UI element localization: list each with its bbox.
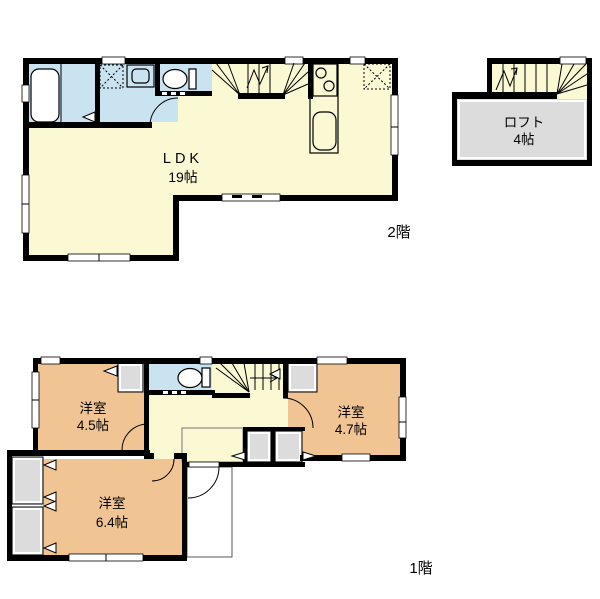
closet-room45: [118, 363, 143, 392]
loft-size-label: 4帖: [513, 132, 534, 147]
entrance-porch: [187, 467, 232, 557]
room45-size-label: 4.5帖: [77, 418, 109, 433]
loft-plan: ロフト 4帖: [452, 57, 592, 166]
room45-label: 洋室: [80, 400, 107, 416]
bathtub-icon: [31, 69, 59, 122]
floor2-label: 2階: [387, 224, 410, 241]
ldk-size-label: 19帖: [168, 169, 198, 185]
floor2-plan: LDK 19帖 2階: [22, 57, 411, 261]
room64-size-label: 6.4帖: [96, 515, 128, 530]
closet-room47-top: [288, 363, 317, 392]
room47-label: 洋室: [338, 404, 365, 420]
closet-hall: [247, 431, 271, 462]
toilet1f-icon: [178, 368, 210, 388]
room64-label: 洋室: [99, 495, 126, 511]
floor-plan-drawing: LDK 19帖 2階 ロ: [0, 0, 600, 599]
loft-label: ロフト: [504, 115, 545, 130]
floor-plan-page: LDK 19帖 2階 ロ: [0, 0, 600, 599]
floor1-label: 1階: [409, 560, 432, 577]
closet-room47-bottom: [275, 431, 302, 462]
room47-size-label: 4.7帖: [335, 422, 367, 437]
floor1-plan: 洋室 4.5帖 洋室 4.7帖 洋室 6.4帖 1階: [7, 357, 433, 577]
loft-window: [560, 57, 586, 64]
toilet2f-icon: [163, 69, 196, 89]
ldk-label: LDK: [163, 151, 203, 167]
closet-room64-bottom: [12, 507, 43, 555]
closet-room64-top: [12, 457, 43, 504]
